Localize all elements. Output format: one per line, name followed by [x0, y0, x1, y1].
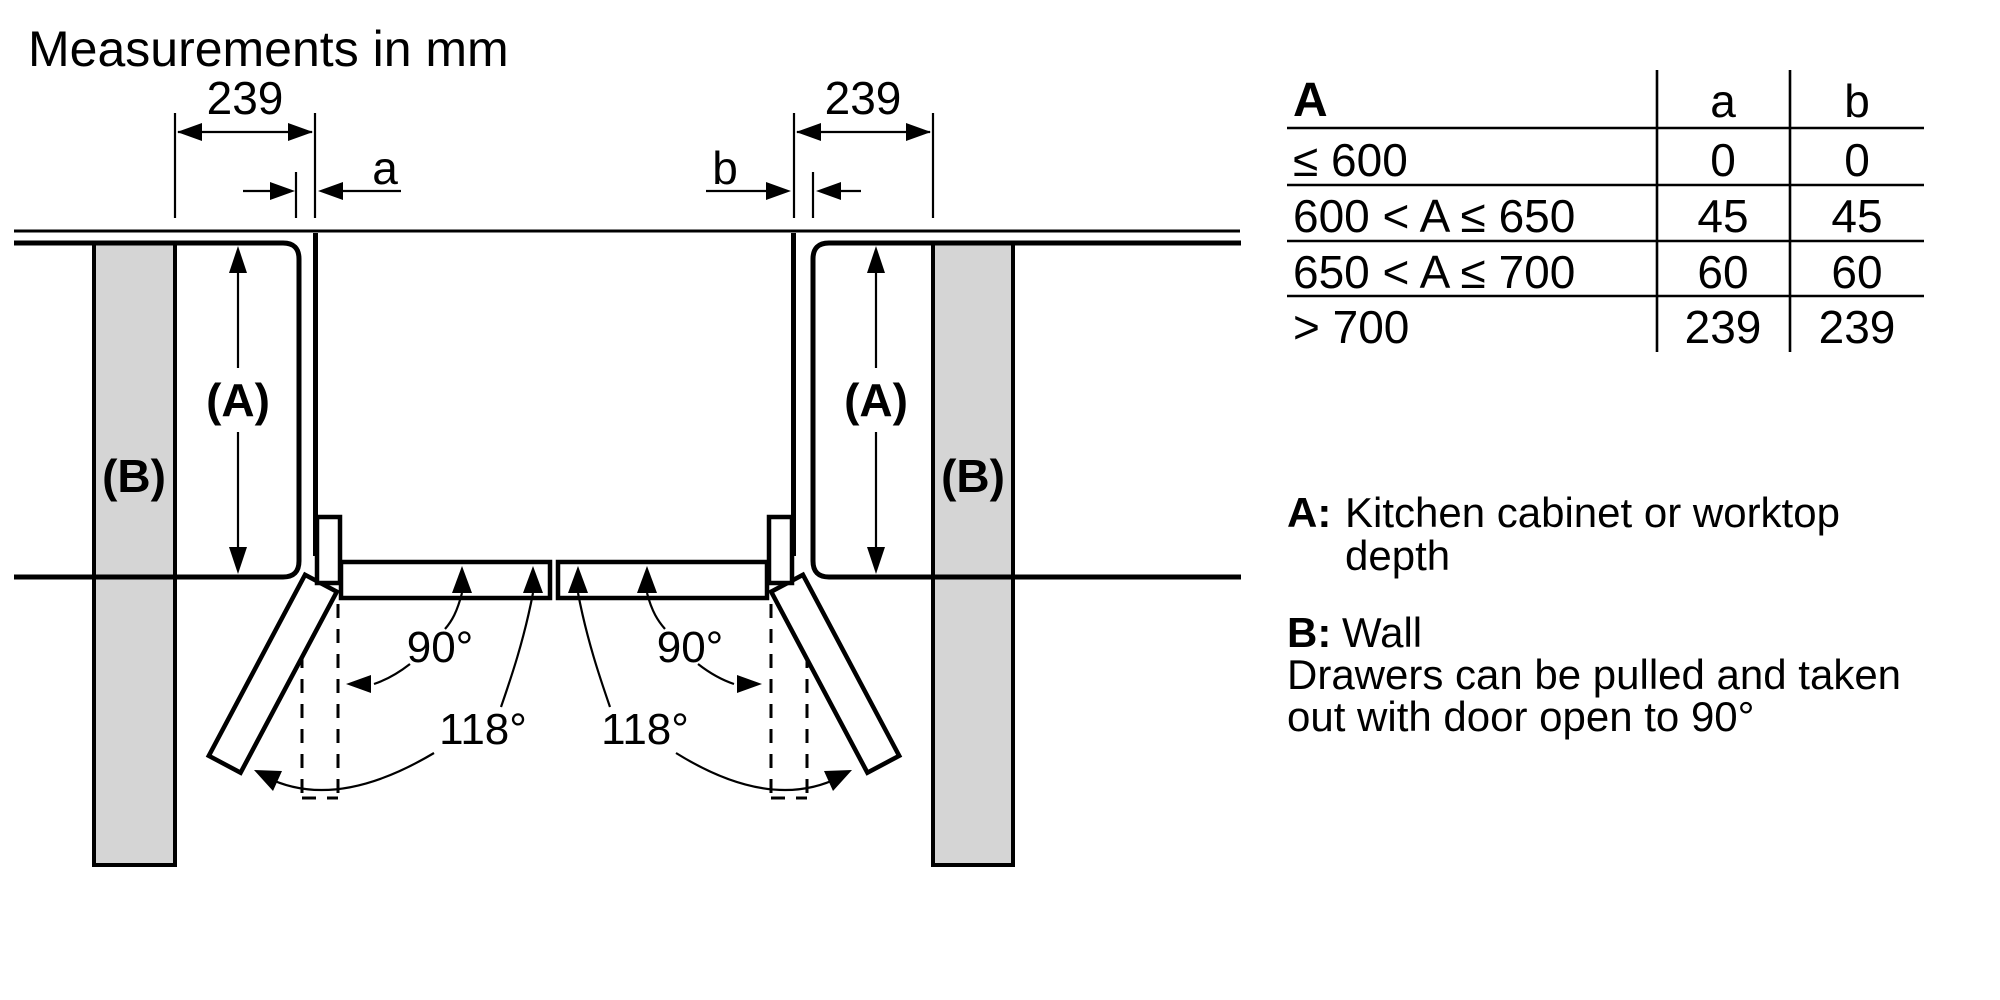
angle-90-right-label: 90°	[657, 623, 724, 672]
arrow-left-icon	[816, 182, 841, 200]
table-header-range: A	[1293, 74, 1328, 127]
row-range: 600 < A ≤ 650	[1293, 190, 1575, 242]
arrow-up-left-icon	[254, 770, 282, 791]
table-row: ≤ 600 0 0	[1293, 134, 1870, 186]
wall-left: (B)	[94, 243, 175, 865]
wall-right-label: (B)	[941, 450, 1005, 502]
angle-90-left-label: 90°	[407, 623, 474, 672]
depth-arrow-left: (A)	[206, 246, 270, 574]
arrow-up-right-icon	[824, 770, 852, 791]
hinge-left	[317, 517, 340, 583]
arrow-right-icon	[766, 182, 791, 200]
appliance-installation-diagram: Measurements in mm (B) (B)	[0, 0, 2000, 1000]
arrow-down-icon	[867, 547, 885, 574]
arrow-right-icon	[288, 123, 313, 141]
clearance-table: A a b ≤ 600 0 0 600 < A ≤ 650 45 45 650 …	[1287, 70, 1924, 353]
depth-arrow-right: (A)	[844, 246, 908, 574]
arrow-right-icon	[270, 182, 295, 200]
angle-90-right: 90°	[657, 623, 762, 693]
leader-line	[501, 593, 533, 707]
legend-b-text: Wall	[1342, 609, 1422, 656]
arrow-right-icon	[737, 675, 762, 693]
cabinet-a-label-right: (A)	[844, 374, 908, 426]
plan-view: (B) (B)	[14, 72, 1241, 865]
row-b: 0	[1844, 134, 1870, 186]
leader-arc	[266, 753, 434, 790]
wall-right: (B)	[933, 243, 1013, 865]
legend-a-text-line1: Kitchen cabinet or worktop	[1345, 489, 1840, 536]
angle-118-right-label: 118°	[601, 705, 689, 754]
dimension-239-right: 239 b	[706, 72, 933, 218]
page-title: Measurements in mm	[28, 21, 509, 77]
arrow-up-icon	[867, 246, 885, 273]
angle-118-right: 118°	[601, 705, 852, 791]
legend-a-text-line2: depth	[1345, 532, 1450, 579]
arrow-down-icon	[229, 547, 247, 574]
leader-line	[578, 593, 610, 707]
arrow-up-icon	[229, 246, 247, 273]
arrow-right-icon	[906, 123, 931, 141]
row-a: 239	[1685, 301, 1762, 353]
wall-left-label: (B)	[102, 450, 166, 502]
arrow-left-icon	[177, 123, 202, 141]
row-b: 45	[1831, 190, 1882, 242]
dim-239-left-value: 239	[207, 72, 284, 124]
table-header-a: a	[1710, 75, 1736, 127]
row-range: > 700	[1293, 301, 1409, 353]
row-a: 45	[1697, 190, 1748, 242]
door-open-118-left	[209, 575, 337, 773]
leader-line	[374, 664, 410, 684]
angle-90-left: 90°	[346, 623, 473, 693]
wall-left-shape	[94, 243, 175, 865]
leader-arc	[676, 753, 840, 790]
arrow-left-icon	[796, 123, 821, 141]
legend-b-key: B:	[1287, 609, 1331, 656]
legend: A: Kitchen cabinet or worktop depth B: W…	[1287, 489, 1901, 740]
door-closed-left	[341, 562, 550, 598]
gap-a-label: a	[372, 142, 398, 194]
door-open-118-right	[771, 575, 899, 773]
row-range: 650 < A ≤ 700	[1293, 246, 1575, 298]
arrow-left-icon	[346, 675, 371, 693]
table-row: 650 < A ≤ 700 60 60	[1293, 246, 1883, 298]
table-header-b: b	[1844, 75, 1870, 127]
row-b: 60	[1831, 246, 1882, 298]
table-row: 600 < A ≤ 650 45 45	[1293, 190, 1883, 242]
dim-239-right-value: 239	[825, 72, 902, 124]
angle-118-left-label: 118°	[439, 705, 527, 754]
table-row: > 700 239 239	[1293, 301, 1895, 353]
legend-note-line2: out with door open to 90°	[1287, 693, 1754, 740]
row-b: 239	[1819, 301, 1896, 353]
row-a: 0	[1710, 134, 1736, 186]
legend-note-line1: Drawers can be pulled and taken	[1287, 651, 1901, 698]
dimension-239-left: 239 a	[175, 72, 401, 218]
gap-b-label: b	[712, 142, 738, 194]
door-closed-right	[558, 562, 767, 598]
legend-a-key: A:	[1287, 489, 1331, 536]
cabinet-a-label-left: (A)	[206, 374, 270, 426]
arrow-left-icon	[318, 182, 343, 200]
angle-118-left: 118°	[254, 705, 527, 791]
hinge-right	[769, 517, 792, 583]
row-a: 60	[1697, 246, 1748, 298]
wall-right-shape	[933, 243, 1013, 865]
row-range: ≤ 600	[1293, 134, 1408, 186]
